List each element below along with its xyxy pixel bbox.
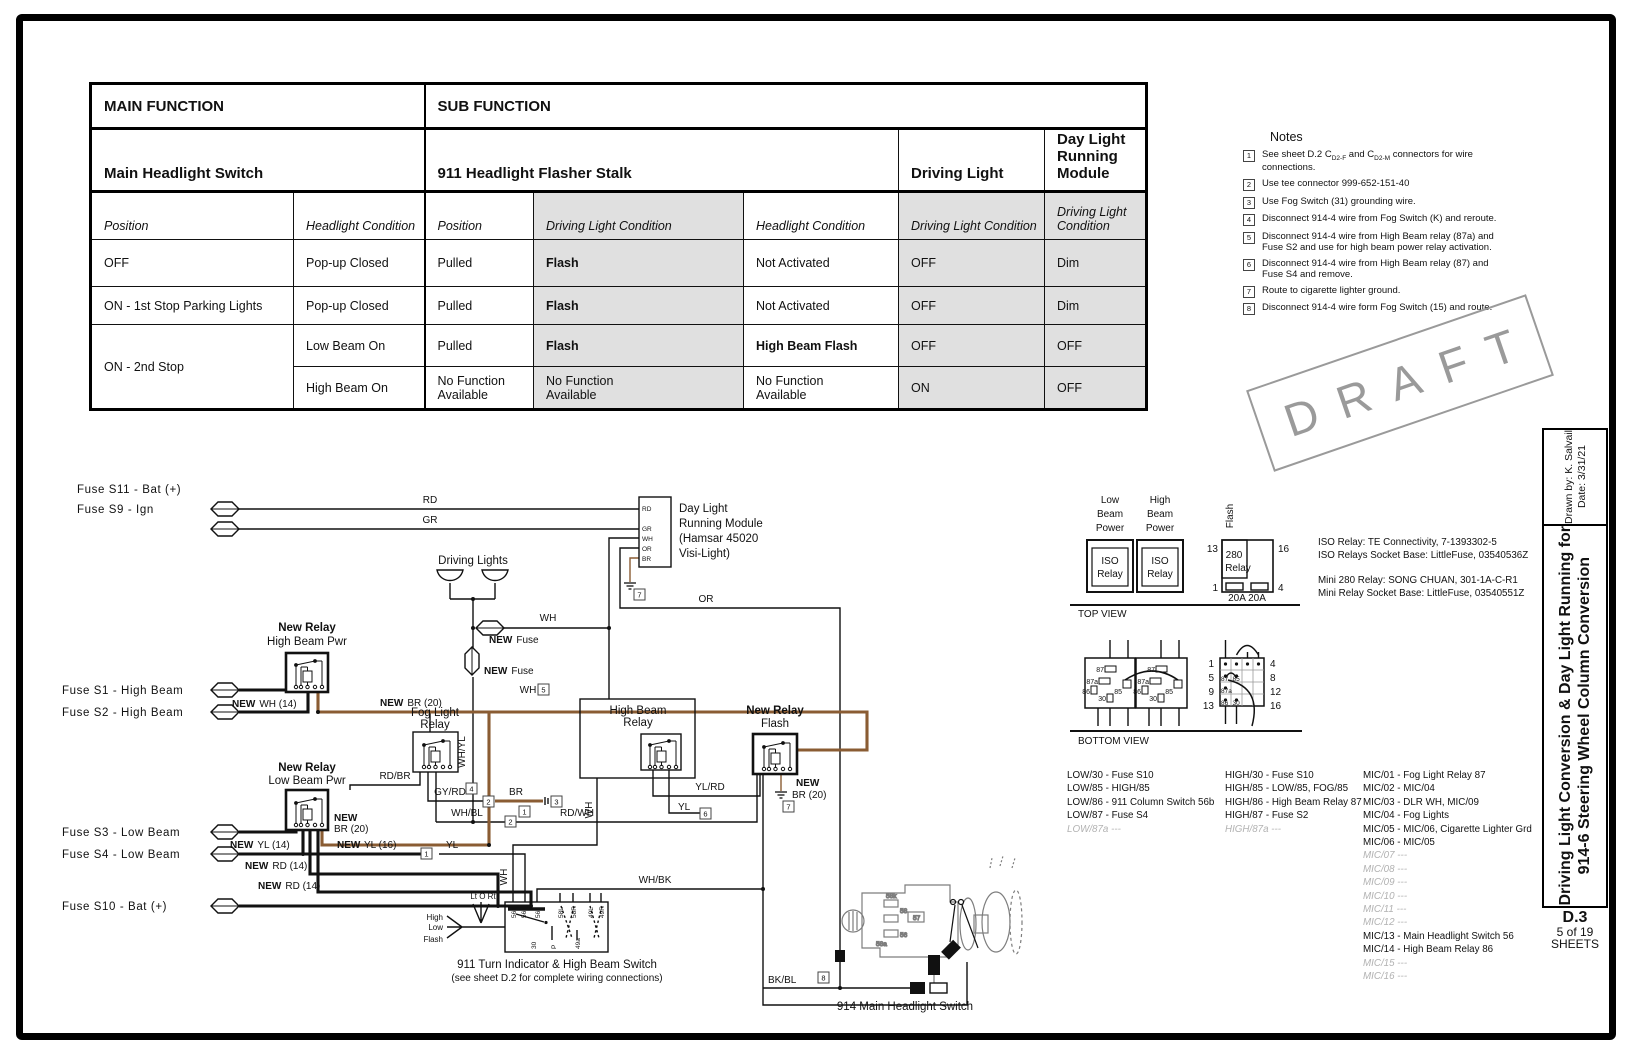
connector-plugs <box>835 940 961 994</box>
component-label: Relay <box>623 717 653 729</box>
pin-number: 1 <box>1208 659 1214 670</box>
component-label: High Beam <box>610 705 667 717</box>
module-name: Day Light <box>679 503 728 515</box>
wire-label: RD (14) <box>272 861 307 872</box>
wire-label: WH/BL <box>451 808 483 819</box>
wire-label: WH <box>499 869 510 886</box>
wire-label: BR (20) <box>334 824 368 835</box>
sketch-pin: 56 <box>900 932 908 939</box>
sketch-pin: 58 <box>900 908 908 915</box>
pin-number: 5 <box>1208 673 1214 684</box>
wire-label: OR <box>699 594 714 605</box>
view-label: TOP VIEW <box>1078 609 1127 620</box>
wire-label: NEW <box>258 881 282 892</box>
fuse-label: Fuse S1 - High Beam <box>62 685 183 697</box>
wire-label: RD (14) <box>285 881 320 892</box>
svg-text:NEWYL (14): NEWYL (14) <box>230 840 290 851</box>
module-pin-label: OR <box>642 546 652 553</box>
pin-label: 87a <box>1221 688 1232 695</box>
label: 20A 20A <box>1228 593 1266 604</box>
wire-end-ticks <box>545 797 548 805</box>
wire-label: WH <box>540 613 557 624</box>
dlr-module: RD GR WH OR BR Day Light Running Module … <box>639 497 763 567</box>
switch-pin: 49a <box>575 938 582 949</box>
wiring-diagram: RD GR WH OR BR Day Light Running Module … <box>0 0 1632 1056</box>
sketch-pin: 58a <box>876 941 887 948</box>
pin-label: 85 <box>1114 689 1122 696</box>
relay-top-view: Low Beam Power High Beam Power ISO Relay… <box>1070 495 1300 620</box>
module-pin-label: BR <box>642 556 651 563</box>
note-ref: 1 <box>424 850 428 859</box>
pin-number: 16 <box>1278 544 1290 555</box>
note-ref: 5 <box>541 686 545 695</box>
svg-text:NEWFuse: NEWFuse <box>484 666 534 677</box>
switch-pin: P <box>551 945 558 949</box>
wire-label: GR <box>423 515 438 526</box>
pin-label: 87 <box>1221 676 1229 683</box>
component-label: New Relay <box>278 762 336 774</box>
switch-pin: 56a <box>511 907 518 918</box>
label: 280 <box>1226 550 1243 561</box>
pin-number: 13 <box>1207 544 1219 555</box>
fuse-label: Fuse S4 - Low Beam <box>62 849 180 861</box>
note-ref: 8 <box>821 974 825 983</box>
svg-text:NEWWH (14): NEWWH (14) <box>232 699 297 710</box>
wire-label: NEW <box>380 698 404 709</box>
wire-label: NEW <box>232 699 256 710</box>
svg-text:NEWRD (14): NEWRD (14) <box>258 881 320 892</box>
wire-label: NEW <box>230 840 254 851</box>
pin-label: 30 <box>1149 696 1157 703</box>
wire-label: NEW <box>484 666 508 677</box>
wire-label: BR (20) <box>792 790 826 801</box>
pin-label: 87a <box>1086 679 1098 686</box>
wire-label: GY/RD <box>434 787 466 798</box>
pin-label: 85 <box>1233 676 1241 683</box>
component-label: High Beam Pwr <box>267 636 347 648</box>
label: Relay <box>1097 569 1123 580</box>
switch-pin: 49R <box>599 906 606 918</box>
component-label: Driving Lights <box>438 555 508 567</box>
wire-label: RD <box>423 495 437 506</box>
label: Relay <box>1147 569 1173 580</box>
label: Low <box>1101 495 1120 506</box>
driving-lights-symbol <box>437 570 508 581</box>
label: Relay <box>1225 563 1251 574</box>
note-ref: 2 <box>508 818 512 827</box>
drawing-sheet: { "page": { "watermark": "DRAFT", "drawn… <box>0 0 1632 1056</box>
component-label: Relay <box>420 719 450 731</box>
pin-number: 13 <box>1203 701 1215 712</box>
wire-label: Lt O Rt <box>470 892 496 901</box>
ground-symbol <box>775 792 787 798</box>
label: Beam <box>1147 509 1173 520</box>
sketch-pin: 57 <box>913 915 921 922</box>
svg-text:NEWFuse: NEWFuse <box>489 635 539 646</box>
pin-number: 16 <box>1270 701 1282 712</box>
module-name: (Hamsar 45020 <box>679 533 758 545</box>
view-label: BOTTOM VIEW <box>1078 736 1149 747</box>
module-pin-label: RD <box>642 506 652 513</box>
svg-text:NEWRD (14): NEWRD (14) <box>245 861 307 872</box>
pin-label: 86 <box>1133 689 1141 696</box>
wire-label: NEW <box>245 861 269 872</box>
switch-pin: 49L <box>588 907 595 918</box>
wire-label: YL/RD <box>695 782 724 793</box>
wire-label: Fuse <box>516 635 539 646</box>
wire-label: WH (14) <box>259 699 296 710</box>
wire-label: WH/YL <box>457 736 468 768</box>
wire-label: BK/BL <box>768 975 797 986</box>
pin-label: 87 <box>1096 667 1104 674</box>
new-fuse-vertical <box>465 647 479 675</box>
wire-label: NEW <box>337 840 361 851</box>
pin-label: 86 <box>1221 700 1229 707</box>
wire-label: High <box>427 913 443 922</box>
wire-label: Fuse <box>511 666 534 677</box>
note-ref: 4 <box>469 785 473 794</box>
fuse-labels: Fuse S11 - Bat (+) Fuse S9 - Ign Fuse S1… <box>62 484 183 913</box>
fuse-label: Fuse S2 - High Beam <box>62 707 183 719</box>
module-name: Running Module <box>679 518 763 530</box>
label: Power <box>1096 523 1125 534</box>
note-ref: 6 <box>703 810 707 819</box>
relays <box>286 653 797 830</box>
ground-symbol <box>624 583 636 589</box>
wire-label: NEW <box>334 813 358 824</box>
component-label: Fog Light <box>411 707 460 719</box>
pin-label: 87a <box>1137 679 1149 686</box>
pin-label: 85 <box>1165 689 1173 696</box>
switch-pin: 30 <box>531 941 538 949</box>
component-label: New Relay <box>746 705 804 717</box>
sketch-pin: 58k <box>886 893 897 900</box>
fuse-label: Fuse S3 - Low Beam <box>62 827 180 839</box>
wire-label: BR <box>509 787 523 798</box>
caption: 911 Turn Indicator & High Beam Switch <box>457 959 657 971</box>
switch-pin: 56 <box>535 910 542 918</box>
component-label: Low Beam Pwr <box>268 775 346 787</box>
wire-label: NEW <box>796 778 820 789</box>
label: Power <box>1146 523 1175 534</box>
pin-number: 9 <box>1208 687 1214 698</box>
pin-label: 30 <box>1233 700 1241 707</box>
pin-label: 87 <box>1147 667 1155 674</box>
label: High <box>1150 495 1171 506</box>
module-pin-label: GR <box>642 526 652 533</box>
component-label: Flash <box>761 718 789 730</box>
wire-label: RD/BR <box>379 771 410 782</box>
turn-indicator-switch: 56a 56b 56 58L 58R 49L 49R 30 P 49a <box>505 902 608 952</box>
caption: 914 Main Headlight Switch <box>837 1001 973 1013</box>
module-name: Visi-Light) <box>679 548 730 560</box>
wire-label: WH <box>520 685 537 696</box>
note-ref: 3 <box>554 798 558 807</box>
pin-number: 8 <box>1270 673 1276 684</box>
note-ref: 1 <box>522 808 526 817</box>
note-reference-boxes: 5 4 2 3 2 1 1 6 7 7 8 <box>421 589 829 983</box>
wire-label: WH <box>584 802 595 819</box>
module-pin-label: WH <box>642 536 653 543</box>
relay-bottom-view: 87 87a 86 85 30 87 87a 86 85 30 87 85 87… <box>1070 640 1302 747</box>
wire-label: Flash <box>423 935 443 944</box>
caption: (see sheet D.2 for complete wiring conne… <box>451 973 662 984</box>
pin-number: 4 <box>1270 659 1276 670</box>
note-ref: 7 <box>786 803 790 812</box>
pin-number: 1 <box>1212 583 1218 594</box>
pin-number: 4 <box>1278 583 1284 594</box>
new-fuse-horizontal <box>476 621 504 635</box>
wire-label: YL <box>446 840 459 851</box>
fuse-label: Fuse S9 - Ign <box>77 504 154 516</box>
label: ISO <box>1101 556 1118 567</box>
switch-pin: 58L <box>558 907 565 918</box>
junction-dots <box>301 597 842 990</box>
wire-label: YL <box>678 802 691 813</box>
pin-label: 30 <box>1098 696 1106 703</box>
wire-label: Low <box>428 923 443 932</box>
switch-pin: 58R <box>571 906 578 918</box>
wire-label: NEW <box>489 635 513 646</box>
label: Beam <box>1097 509 1123 520</box>
pin-label: 86 <box>1082 689 1090 696</box>
fuse-label: Fuse S11 - Bat (+) <box>77 484 181 496</box>
component-label: New Relay <box>278 622 336 634</box>
switch-pin: 56b <box>521 907 528 918</box>
label: ISO <box>1151 556 1168 567</box>
pin-number: 12 <box>1270 687 1282 698</box>
wire-label: WH/BK <box>639 875 672 886</box>
fuse-label: Fuse S10 - Bat (+) <box>62 901 167 913</box>
note-ref: 7 <box>637 591 641 600</box>
label: Flash <box>1225 504 1236 528</box>
note-ref: 2 <box>486 798 490 807</box>
wire-label: YL (14) <box>257 840 289 851</box>
wire-label: YL (16) <box>364 840 396 851</box>
